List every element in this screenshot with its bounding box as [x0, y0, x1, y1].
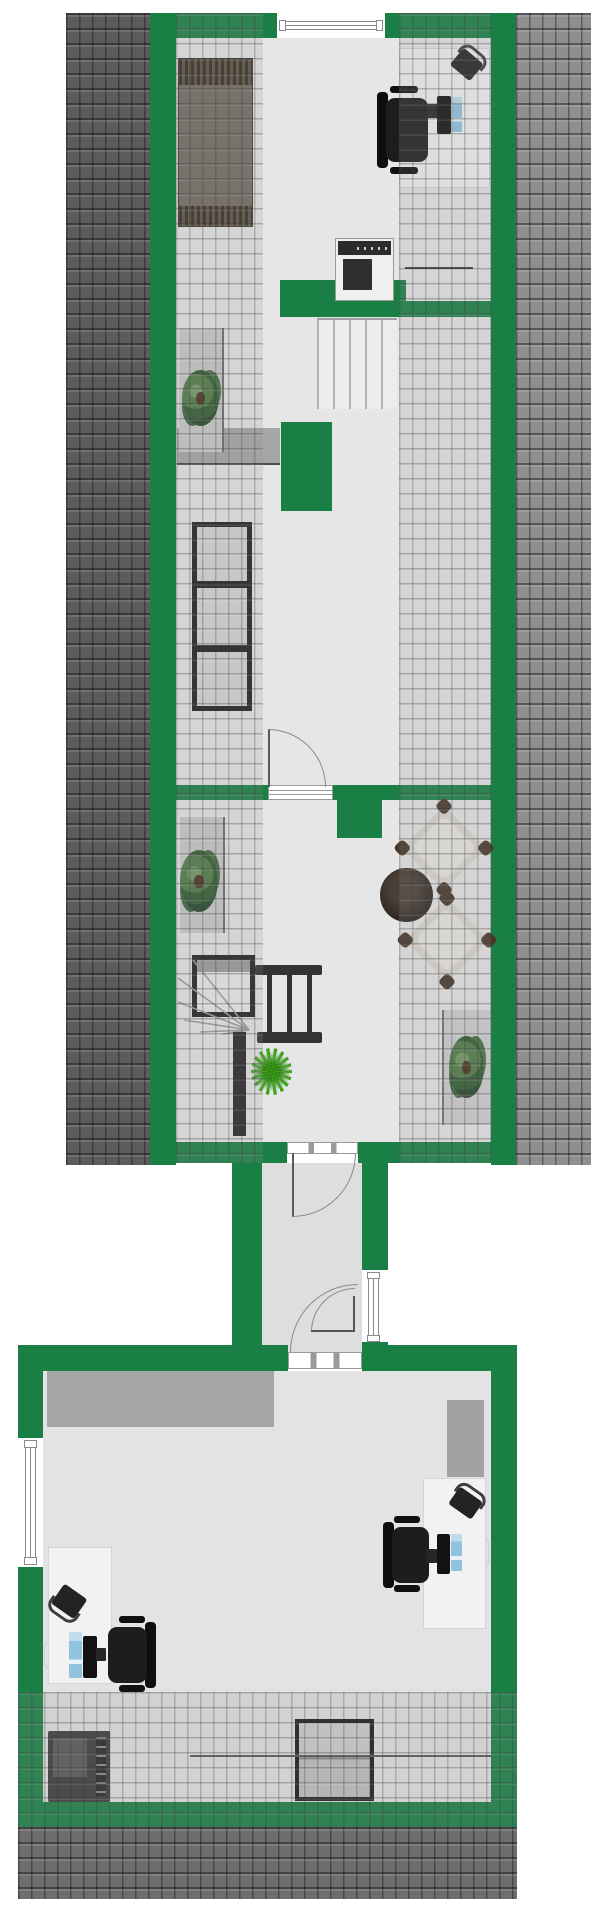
upper-office-chair: [377, 86, 429, 174]
storage-door: [268, 785, 333, 800]
window-cap: [367, 1335, 380, 1342]
upper-right-wall: [491, 13, 516, 1165]
window-cap: [367, 1272, 380, 1279]
stairwell-wall: [233, 1032, 246, 1136]
shelving-unit: [192, 522, 252, 711]
potted-plant-1: [182, 370, 219, 426]
lower-entry-door: [288, 1352, 362, 1369]
window-cap: [376, 20, 383, 31]
right-monitor: [437, 1534, 450, 1574]
upper-right-roof: [516, 13, 591, 1165]
upper-left-wall: [150, 13, 176, 1165]
lower-bottom-roof: [18, 1827, 517, 1899]
lounge-wall-left: [176, 785, 268, 800]
round-side-table: [380, 868, 433, 922]
storage-wall-stub: [281, 422, 332, 511]
right-document: [451, 1534, 462, 1571]
railing-baluster: [307, 975, 312, 1035]
railing-baluster: [267, 975, 272, 1035]
railing-top: [255, 965, 322, 975]
upper-top-wall-left: [150, 13, 277, 38]
floor-plan-canvas: [0, 0, 605, 1920]
straight-staircase: [317, 318, 397, 409]
left-monitor: [83, 1636, 97, 1678]
upper-cabinet-edge: [405, 267, 473, 269]
bed: [178, 58, 253, 227]
upper-document: [452, 97, 462, 132]
lounge-wall-stub: [337, 800, 382, 838]
railing-bottom: [257, 1032, 322, 1043]
lower-top-wall-left: [18, 1345, 288, 1371]
right-office-chair: [383, 1514, 430, 1594]
potted-plant-2: [180, 850, 218, 912]
lounge-wall-right: [333, 785, 491, 800]
left-office-chair: [104, 1614, 156, 1694]
window-cap: [24, 1557, 37, 1565]
lower-left-wall-lower: [18, 1567, 43, 1827]
lower-left-wall-upper: [18, 1345, 43, 1438]
potted-plant-3: [449, 1036, 484, 1098]
lower-printer-copier: [48, 1731, 110, 1802]
corridor-window-icon: [368, 1273, 379, 1339]
left-document: [69, 1632, 82, 1678]
upper-left-roof: [66, 13, 150, 1165]
ceiling-zone-topleft: [47, 1371, 274, 1427]
roof-ridge-line: [190, 1755, 491, 1757]
upper-half-wall-thin: [406, 301, 491, 317]
upper-window-icon: [280, 21, 382, 30]
corridor-right-wall: [362, 1142, 388, 1270]
upper-monitor: [437, 96, 451, 134]
lower-bottom-wall: [18, 1802, 517, 1827]
upper-top-wall-right: [385, 13, 516, 38]
lower-window-icon: [25, 1441, 36, 1564]
winder-treads: [176, 956, 254, 1036]
upper-bottom-wall-left: [150, 1142, 287, 1163]
railing-baluster: [287, 975, 292, 1035]
lower-entry-door-leaf: [311, 1296, 355, 1332]
corridor-left-wall: [232, 1163, 262, 1371]
right-keyboard: [426, 1549, 437, 1563]
window-cap: [24, 1440, 37, 1448]
palm-plant: [251, 1048, 292, 1095]
window-cap: [279, 20, 286, 31]
square-table: [295, 1719, 374, 1801]
ceiling-zone-right: [447, 1400, 484, 1477]
lower-right-wall: [491, 1345, 517, 1827]
upper-printer-copier: [335, 238, 394, 301]
